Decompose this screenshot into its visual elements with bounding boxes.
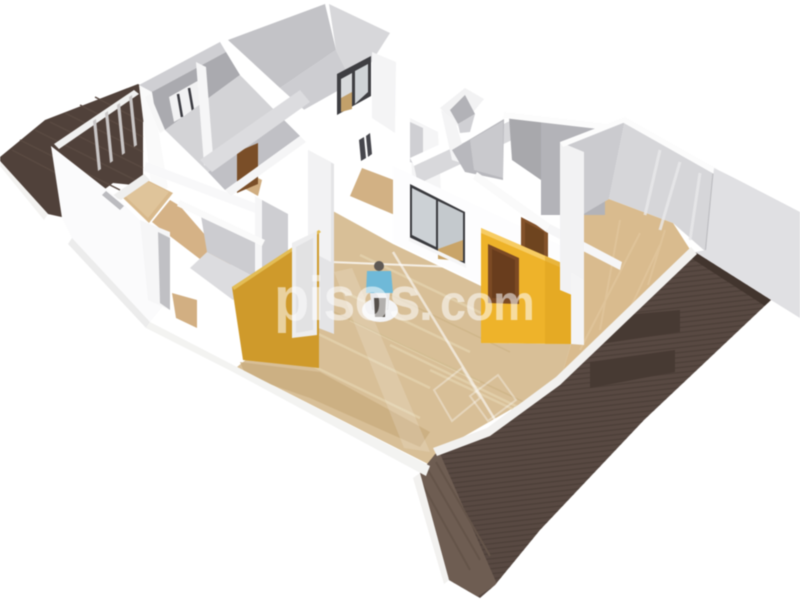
svg-text:.: . bbox=[419, 275, 433, 331]
svg-text:com: com bbox=[440, 276, 534, 332]
svg-text:pisos: pisos bbox=[274, 264, 420, 333]
